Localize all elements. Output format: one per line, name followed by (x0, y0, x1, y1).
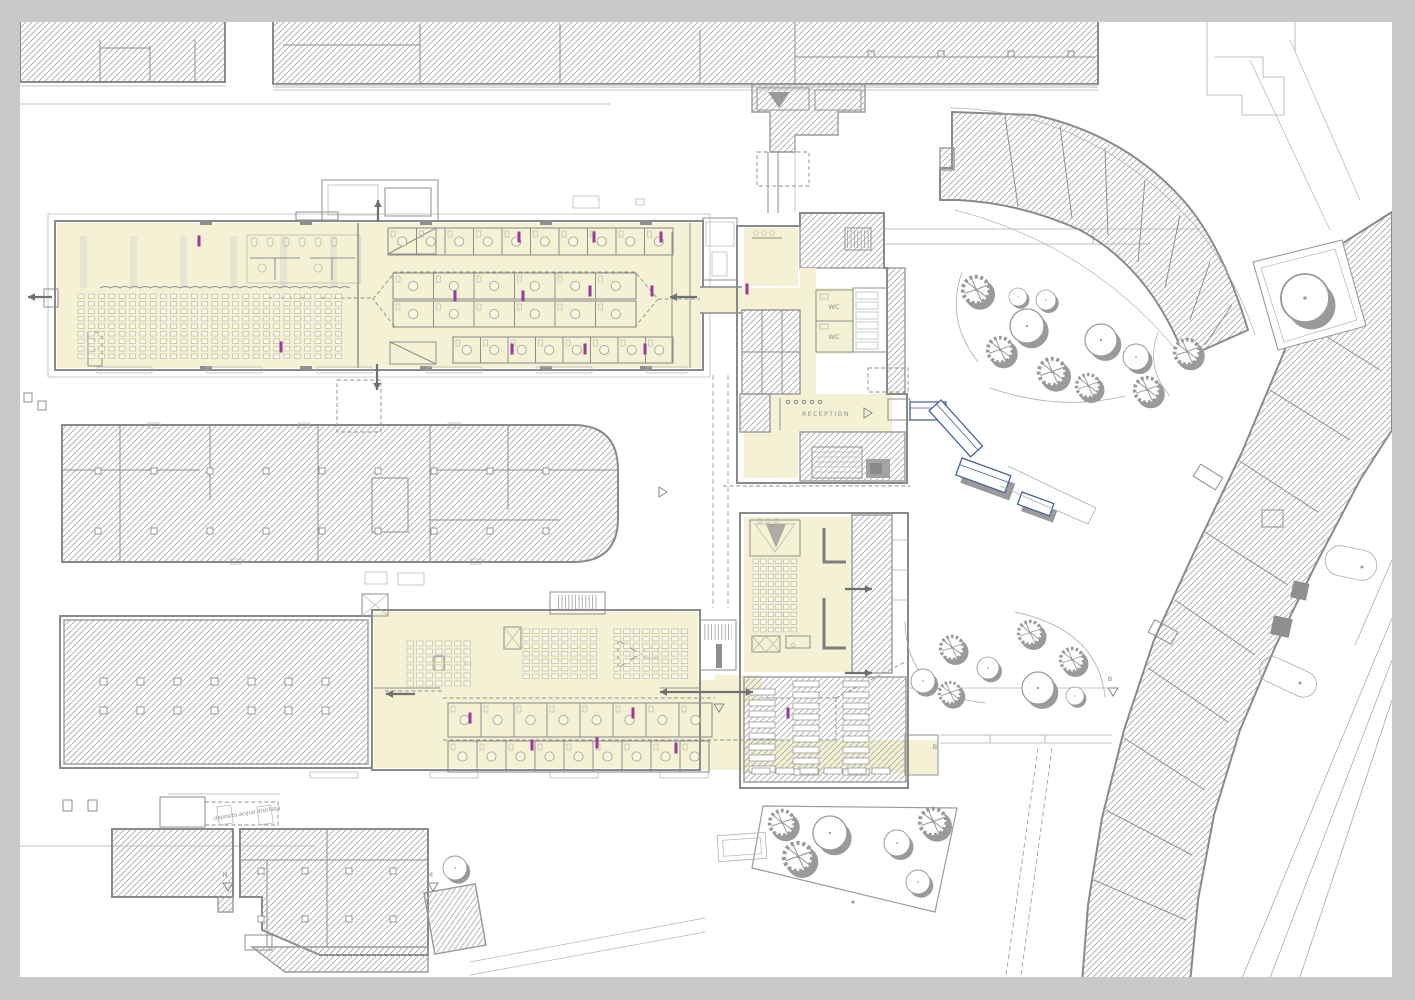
door-marker (660, 232, 663, 243)
water-shed-label: deposito acqua distillata (213, 805, 281, 822)
tree (1039, 359, 1071, 392)
north-building-band-west (20, 20, 225, 82)
door-marker (198, 236, 201, 247)
door-marker (593, 232, 596, 243)
door-marker (280, 342, 283, 353)
tree (1009, 288, 1029, 309)
section-marker: N (223, 871, 228, 879)
door-marker (632, 708, 635, 719)
door-marker (522, 291, 525, 302)
site-plan-svg: NMBB WC WC RECEPTION deposito acqua dist… (0, 0, 1415, 1000)
section-marker: B (933, 743, 937, 751)
wc-label-2: WC (829, 333, 840, 341)
door-marker (469, 713, 472, 724)
tree (977, 657, 1002, 682)
section-marker: B (1108, 675, 1112, 683)
door-marker (584, 344, 587, 355)
door-marker (787, 708, 790, 719)
door-marker (675, 743, 678, 754)
north-building-band-east (273, 20, 1098, 88)
north-entrance-structure (296, 180, 438, 221)
tree (1085, 324, 1121, 361)
door-marker (746, 284, 749, 295)
triangle-marker (428, 883, 438, 891)
tree (911, 669, 938, 697)
site-plan-page: { "plan": { "labels": { "wc1": "WC", "wc… (0, 0, 1415, 1000)
tree (443, 856, 470, 884)
south-building-west-wing (60, 616, 372, 768)
link-tower-north (700, 218, 742, 608)
door-marker (518, 232, 521, 243)
curved-building-north (940, 108, 1255, 358)
door-marker (589, 286, 592, 297)
frame-top (0, 0, 1415, 22)
frame-right (1392, 0, 1415, 1000)
door-marker (531, 740, 534, 751)
tree (1077, 375, 1105, 404)
tree (1123, 344, 1153, 374)
frame-left (0, 0, 20, 1000)
door-marker (596, 738, 599, 749)
triangle-marker (1108, 688, 1118, 696)
triangle-marker (659, 487, 667, 497)
door-marker (454, 291, 457, 302)
central-hatched-building (62, 423, 618, 564)
frame-bottom (0, 977, 1415, 1000)
tree (939, 682, 965, 708)
tree (1061, 649, 1089, 678)
tree (963, 277, 995, 310)
tree (1019, 622, 1047, 651)
tree (941, 637, 969, 666)
tree (988, 338, 1018, 369)
section-marker: M (427, 871, 433, 879)
door-marker (651, 286, 654, 297)
north-stair-annex (752, 84, 865, 213)
tree (1022, 672, 1058, 709)
flow-arrow (374, 200, 382, 222)
wc-label-1: WC (829, 303, 840, 311)
reception-label: RECEPTION (802, 411, 850, 418)
door-marker (511, 344, 514, 355)
tree (1010, 309, 1049, 348)
tree (1066, 687, 1086, 708)
tree (1036, 290, 1059, 313)
flow-arrow (28, 293, 52, 301)
door-marker (644, 344, 647, 355)
accessible-ramp-blue (910, 400, 1096, 524)
central-entrance-building (723, 213, 910, 486)
